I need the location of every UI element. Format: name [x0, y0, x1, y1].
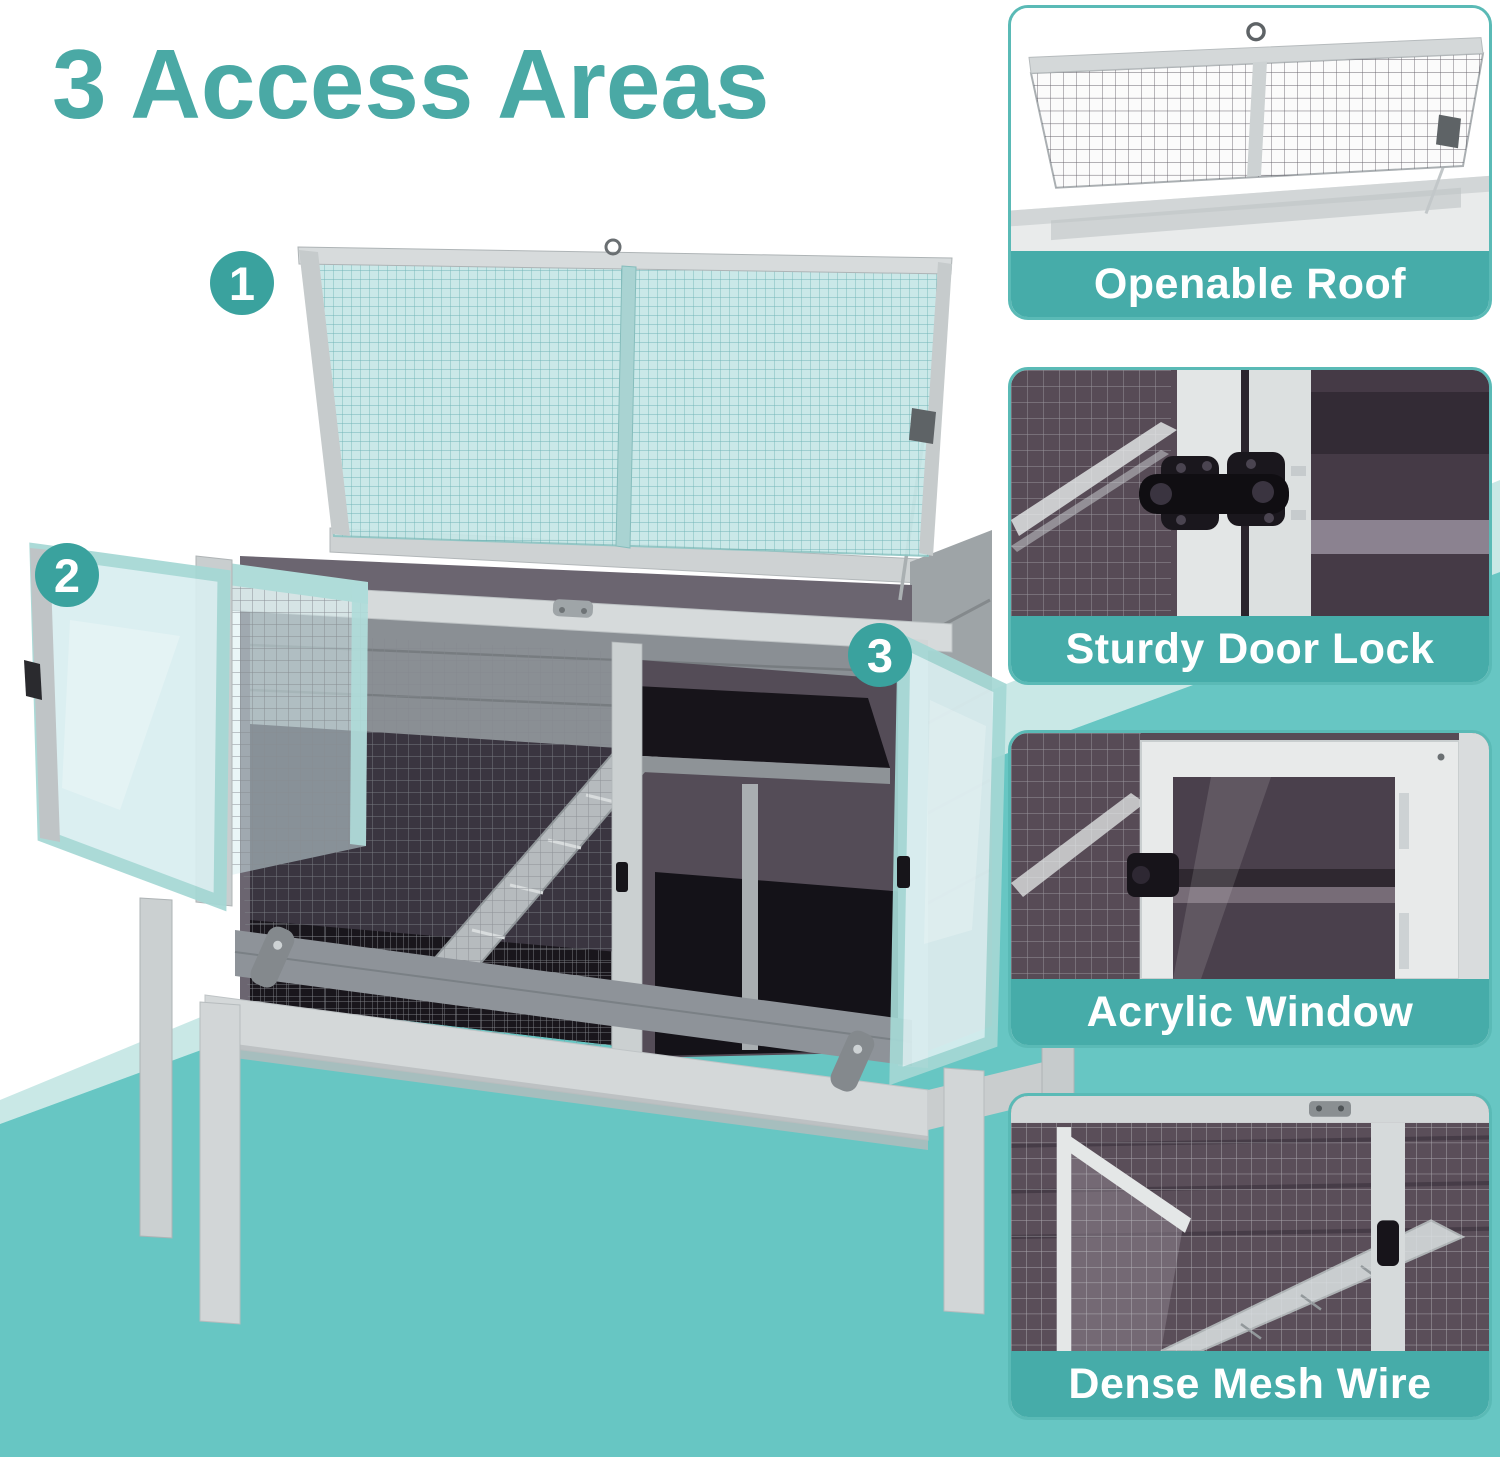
marker-3-number: 3	[867, 628, 893, 683]
hinge-icon	[1399, 913, 1409, 969]
feature-card-dense-mesh-wire: Dense Mesh Wire	[1008, 1093, 1492, 1420]
mesh-door-latch-icon	[1377, 1220, 1399, 1266]
openable-roof-photo	[1011, 8, 1489, 251]
feature-caption: Sturdy Door Lock	[1011, 616, 1489, 682]
window-latch-icon	[1127, 853, 1179, 897]
acrylic-window-photo	[1011, 733, 1489, 979]
marker-2-number: 2	[54, 548, 80, 603]
mesh-wire-photo	[1011, 1096, 1489, 1351]
marker-1: 1	[210, 251, 274, 315]
feature-card-acrylic-window: Acrylic Window	[1008, 730, 1492, 1048]
feature-caption: Dense Mesh Wire	[1011, 1351, 1489, 1417]
marker-3: 3	[848, 623, 912, 687]
feature-card-sturdy-door-lock: Sturdy Door Lock	[1008, 367, 1492, 685]
hinge-icon	[1399, 793, 1409, 849]
door-lock-photo	[1011, 370, 1489, 616]
feature-caption: Openable Roof	[1011, 251, 1489, 317]
page-title: 3 Access Areas	[52, 28, 769, 141]
marker-1-number: 1	[229, 256, 255, 311]
product-infographic: 3 Access Areas 1 2 3	[0, 0, 1500, 1457]
marker-2: 2	[35, 543, 99, 607]
feature-caption: Acrylic Window	[1011, 979, 1489, 1045]
feature-card-openable-roof: Openable Roof	[1008, 5, 1492, 320]
right-acrylic-door-open	[896, 642, 1000, 1076]
